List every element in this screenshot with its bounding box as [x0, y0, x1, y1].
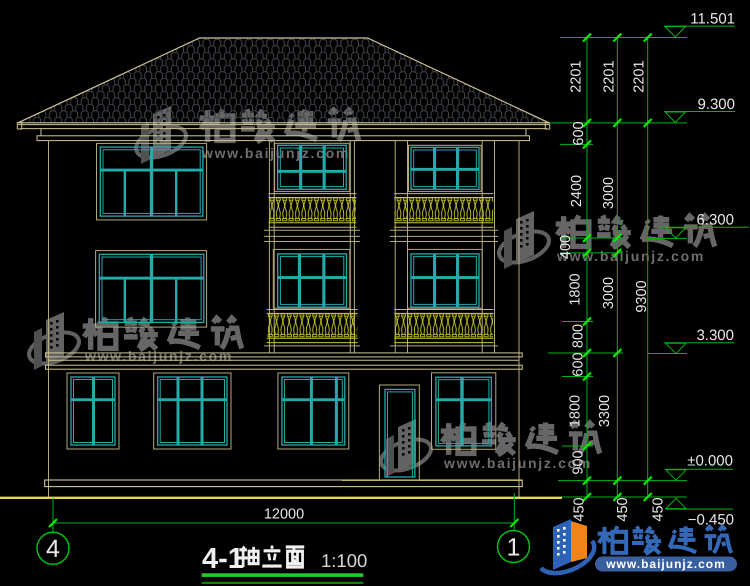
- svg-text:6.300: 6.300: [696, 212, 734, 229]
- svg-text:www.baijunjz.com: www.baijunjz.com: [556, 248, 705, 264]
- svg-text:±0.000: ±0.000: [687, 452, 733, 469]
- svg-text:3000: 3000: [601, 277, 617, 309]
- svg-text:2201: 2201: [601, 60, 617, 92]
- svg-text:400: 400: [558, 235, 574, 259]
- svg-text:800: 800: [570, 324, 586, 348]
- svg-text:600: 600: [570, 352, 586, 376]
- svg-text:450: 450: [615, 497, 631, 521]
- svg-text:12000: 12000: [264, 507, 304, 523]
- svg-text:600: 600: [571, 121, 587, 145]
- svg-text:www.baijunjz.com: www.baijunjz.com: [84, 348, 233, 364]
- svg-text:1: 1: [507, 533, 521, 561]
- svg-text:450: 450: [650, 497, 666, 521]
- svg-text:4-1: 4-1: [202, 543, 244, 575]
- svg-text:1800: 1800: [567, 273, 583, 305]
- svg-text:3000: 3000: [601, 177, 617, 209]
- svg-text:2400: 2400: [569, 175, 585, 207]
- svg-text:11.501: 11.501: [690, 11, 735, 28]
- svg-text:9.300: 9.300: [697, 96, 735, 113]
- svg-text:3300: 3300: [597, 395, 613, 427]
- svg-text:9300: 9300: [634, 280, 650, 312]
- svg-text:450: 450: [571, 497, 587, 521]
- svg-text:4: 4: [46, 535, 60, 563]
- svg-text:www.baijunjz.com: www.baijunjz.com: [605, 557, 726, 571]
- svg-text:www.baijunjz.com: www.baijunjz.com: [201, 145, 350, 161]
- svg-text:2201: 2201: [632, 60, 648, 92]
- svg-text:1800: 1800: [567, 395, 583, 427]
- svg-text:1:100: 1:100: [321, 550, 367, 571]
- svg-text:2201: 2201: [568, 60, 584, 92]
- svg-text:3.300: 3.300: [696, 327, 734, 344]
- svg-text:900: 900: [570, 450, 586, 474]
